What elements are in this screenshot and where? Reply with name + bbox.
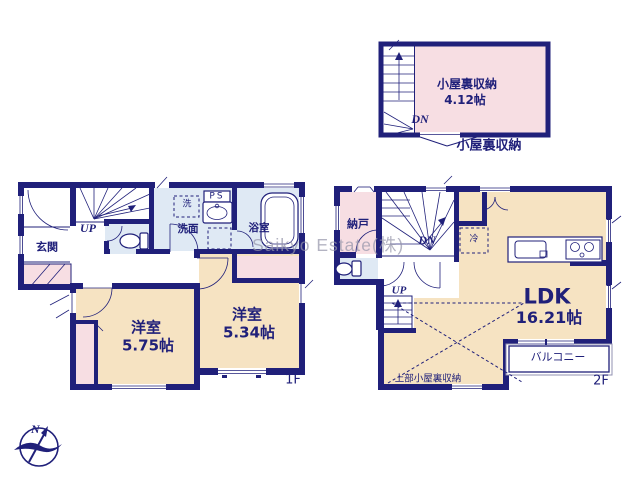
attic-room-name: 小屋裏収納 <box>437 78 497 90</box>
attic-window <box>420 132 460 138</box>
attic-room-size: 4.12帖 <box>444 94 486 106</box>
attic-stairs <box>384 40 415 133</box>
ldk-size: 16.21帖 <box>516 310 583 326</box>
stairs-2f-up <box>384 296 412 328</box>
bedroom2-name: 洋室 <box>232 308 262 323</box>
up-label-1f: UP <box>80 222 96 234</box>
stairs-1f <box>76 188 150 222</box>
bedroom1-size: 5.75帖 <box>122 339 174 354</box>
bathroom-label: 浴室 <box>249 223 270 234</box>
bedroom2-size: 5.34帖 <box>223 326 275 341</box>
floor2-label: 2F <box>593 375 609 388</box>
entrance-porch <box>23 264 71 287</box>
kitchen-counter <box>508 237 602 262</box>
washroom-label: 洗面 <box>178 224 199 235</box>
closet-bedroom2 <box>236 256 300 280</box>
toilet-icon-1f <box>120 233 148 249</box>
washer-label: 洗 <box>182 201 191 210</box>
entrance-label: 玄関 <box>36 242 58 253</box>
attic-above-label: 上部小屋裏収納 <box>395 374 462 384</box>
up-label-2f: UP <box>392 286 407 297</box>
floorplan-page: N Saikyo Estate(株) 小屋裏収納 4.12帖 DN 小屋裏収納 … <box>0 0 640 480</box>
bedroom1-name: 洋室 <box>131 321 161 336</box>
first-floor-plan <box>18 177 313 390</box>
compass-north-label: N <box>30 422 41 436</box>
watermark: Saikyo Estate(株) <box>252 232 404 257</box>
balcony-label: バルコニー <box>531 352 586 363</box>
ldk-name: LDK <box>523 287 570 308</box>
storage-label: 納戸 <box>347 219 369 230</box>
attic-dn-label: DN <box>411 113 428 125</box>
compass-icon: N <box>14 422 62 466</box>
dn-label-2f: DN <box>418 234 435 246</box>
fridge-label: 冷 <box>469 236 478 245</box>
attic-callout-label: 小屋裏収納 <box>456 140 521 153</box>
pipe-space-label: PS <box>209 193 224 202</box>
sink-icon <box>203 202 232 223</box>
floor1-label: 1F <box>285 374 301 387</box>
